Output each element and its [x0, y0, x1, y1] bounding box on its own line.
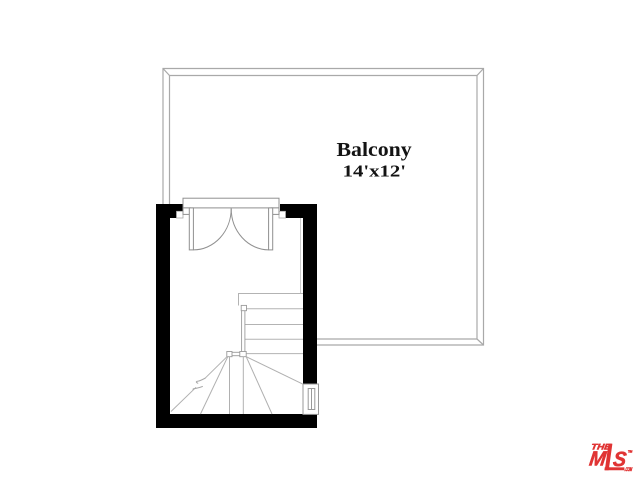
svg-text:14'x12': 14'x12': [343, 162, 407, 181]
svg-text:.COM: .COM: [624, 467, 632, 473]
svg-text:Balcony: Balcony: [337, 139, 412, 161]
